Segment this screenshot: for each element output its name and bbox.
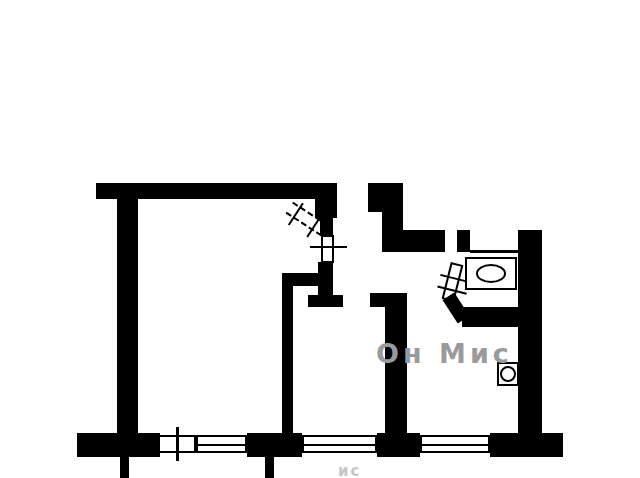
entry-door-tick-1 — [288, 203, 304, 226]
window-3 — [302, 435, 377, 453]
hallway-foot-wall — [308, 295, 343, 307]
balcony-stub-left — [120, 457, 129, 478]
bathtub — [465, 257, 517, 290]
right-wall — [518, 230, 542, 436]
top-wall — [96, 183, 337, 199]
kitchen-wall — [385, 293, 407, 434]
entry-door-tick-2 — [306, 215, 322, 238]
bathroom-bottom-wall — [462, 307, 520, 327]
kitchen-sink-bowl — [500, 366, 516, 382]
bottom-wall-3 — [377, 433, 420, 457]
hallway-vent-box — [321, 235, 334, 263]
window-2 — [196, 435, 247, 453]
bottom-wall-4 — [490, 433, 563, 457]
window-4 — [420, 435, 490, 453]
hallway-wall-upper — [315, 193, 337, 218]
kitchen-sink — [497, 362, 519, 386]
room-divider-wall — [282, 286, 293, 434]
window-2-mullion — [198, 444, 245, 446]
bottom-wall-1 — [77, 433, 160, 457]
entry-wall-block — [368, 183, 403, 212]
entry-wall-stem — [382, 211, 403, 232]
bathtub-basin — [476, 264, 506, 283]
floorplan-canvas — [0, 0, 640, 478]
bathroom-top-edge-line — [470, 250, 518, 253]
hallway-stub-wall — [282, 273, 333, 286]
left-wall — [117, 198, 138, 434]
balcony-stub-mid — [265, 457, 274, 478]
bathroom-top-jamb — [457, 230, 470, 252]
bathroom-top-wall — [382, 230, 445, 252]
window-1-tick — [176, 427, 179, 461]
bottom-wall-2 — [247, 433, 302, 457]
hallway-vent-tick — [310, 246, 347, 248]
window-4-mullion — [422, 444, 488, 446]
window-3-mullion — [304, 444, 375, 446]
